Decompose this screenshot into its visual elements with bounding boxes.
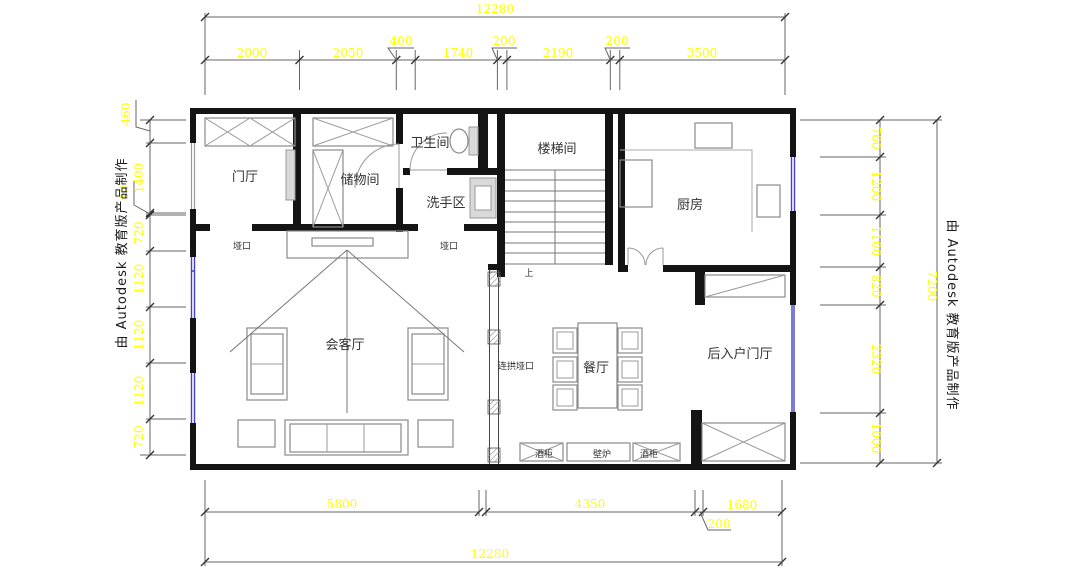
kitchen-door-right <box>646 248 663 265</box>
kitchen-counter-right <box>757 185 780 217</box>
outer-wall-left-seg4 <box>190 425 196 470</box>
label-bathroom: 卫生间 <box>410 136 449 151</box>
dimensions-right: 760 1200 1100 820 2320 1000 7200 <box>800 116 942 467</box>
toilet-tank <box>469 127 478 155</box>
kitchen-top-cabinet <box>695 123 732 148</box>
entry-window-cap-bottom <box>190 209 196 213</box>
kitchen-window <box>792 157 795 213</box>
stair-treads <box>505 170 605 264</box>
dim-bottom-0: 5800 <box>327 497 358 511</box>
label-opening-left: 垭口 <box>233 240 251 252</box>
colonnade-hatch-1 <box>488 272 500 286</box>
dim-bottom-1: 4350 <box>575 497 606 511</box>
wall-bath-right <box>478 114 488 168</box>
watermark-left: 由 Autodesk 教育版产品制作 <box>114 158 130 349</box>
sofa-cushions <box>290 424 401 452</box>
dim-left-leaders <box>134 100 150 214</box>
dim-top-1: 2050 <box>333 46 364 60</box>
wall-kitchen-bottom <box>663 265 790 272</box>
dim-left-extensions <box>140 120 186 455</box>
outer-wall-right-seg2 <box>790 213 796 305</box>
dim-left-5: 1120 <box>132 320 146 351</box>
dim-top-3: 1740 <box>443 46 474 60</box>
wall-rearhall-top-stub <box>695 272 705 305</box>
dimensions-top: 12280 2000 2050 400 1740 200 2190 200 35… <box>201 2 789 95</box>
label-fireplace: 壁炉 <box>593 448 611 460</box>
label-stairwell: 楼梯间 <box>537 142 576 157</box>
living-window-2-cap-bottom <box>190 423 196 427</box>
wall-stair-left <box>497 114 505 277</box>
outer-wall-right-seg3 <box>790 412 796 470</box>
outer-wall-left-seg3 <box>190 320 196 373</box>
wall-hall-a <box>196 224 210 231</box>
kitchen-window-cap-top <box>790 153 796 157</box>
outer-wall-top <box>190 108 796 114</box>
sink-basin <box>475 186 491 210</box>
dim-right-0: 760 <box>869 127 883 150</box>
watermark-right: 由 Autodesk 教育版产品制作 <box>944 220 960 411</box>
kitchen-door-left <box>628 248 645 265</box>
entry-window-cap-top <box>190 139 196 143</box>
label-wine-cabinet-right: 酒柜 <box>640 448 658 460</box>
entry-side-cabinet <box>286 150 295 200</box>
outer-wall-right-seg1 <box>790 108 796 157</box>
dim-left-3: 720 <box>132 222 146 245</box>
dimensions-bottom: 5800 4350 200 1680 12280 <box>201 480 786 566</box>
wall-rearhall-bottom-stub <box>691 410 702 470</box>
toilet-bowl <box>450 129 468 153</box>
entry-left-window <box>192 143 195 213</box>
living-room-fan-lines <box>230 250 464 413</box>
dim-left-1: 1400 <box>132 163 146 194</box>
label-kitchen: 厨房 <box>677 197 703 213</box>
entry-wardrobe <box>205 118 295 146</box>
dim-right-1: 1200 <box>869 171 883 202</box>
stairs <box>505 170 605 264</box>
dim-right-5: 1000 <box>869 423 883 454</box>
dim-top-7: 3500 <box>687 46 718 60</box>
colonnade-hatch-3 <box>488 400 500 414</box>
storage-wardrobe-cross <box>313 118 393 146</box>
dim-bottom-3: 1680 <box>727 498 758 512</box>
dim-top-6: 200 <box>606 34 629 48</box>
living-window-1-cap-top <box>190 253 196 257</box>
rearhall-top-cabinet-diag <box>705 275 785 297</box>
wall-kitchen-bottom-stub <box>618 265 628 272</box>
dim-top-5: 2190 <box>543 46 574 60</box>
label-opening-right: 垭口 <box>440 240 458 252</box>
dim-left-7: 720 <box>132 426 146 449</box>
storage-tall-cross <box>313 150 343 227</box>
living-window-1-cap-bottom <box>190 318 196 322</box>
floor-plan-canvas: 12280 2000 2050 400 1740 200 2190 200 35… <box>0 0 1074 576</box>
label-rear-entry-hall: 后入户门厅 <box>707 346 772 362</box>
dim-right-4: 2320 <box>869 344 883 375</box>
label-living-room: 会客厅 <box>325 337 364 353</box>
dim-top-0: 2000 <box>237 46 268 60</box>
label-wine-cabinet-left: 酒柜 <box>535 448 553 460</box>
outer-wall-left-seg2 <box>190 213 196 257</box>
wall-storage-right-upper <box>396 114 403 144</box>
side-table-left <box>238 420 275 447</box>
wall-kitchen-left <box>618 114 625 265</box>
dim-bottom-2: 200 <box>708 517 731 531</box>
dim-top-2: 400 <box>390 34 413 48</box>
dim-right-2: 1100 <box>869 226 883 257</box>
label-entry-hall: 门厅 <box>232 170 258 185</box>
colonnade-hatch-4 <box>488 448 500 462</box>
dim-right-3: 820 <box>869 275 883 298</box>
rearhall-bottom-cross <box>702 423 785 461</box>
living-window-1 <box>192 257 195 320</box>
side-table-right <box>418 420 453 447</box>
dim-top-4: 200 <box>493 34 516 48</box>
living-window-2 <box>192 373 195 425</box>
sofa-cushion-splits <box>327 424 364 452</box>
colonnade-hatch-2 <box>488 330 500 344</box>
tv-console-inner <box>312 238 373 246</box>
outer-wall-bottom <box>190 464 796 470</box>
living-window-2-cap-top <box>190 369 196 373</box>
label-arch-opening: 连拱垭口 <box>498 360 534 372</box>
sofa <box>285 420 408 455</box>
outer-wall-left-seg1 <box>190 108 196 143</box>
dim-left-6: 1120 <box>132 376 146 407</box>
wall-bath-bottom-b <box>447 168 497 175</box>
wall-stair-right <box>605 114 613 265</box>
wall-hall-d <box>464 224 497 231</box>
dim-top-total: 12280 <box>476 2 514 16</box>
entry-wardrobe-cross <box>205 118 295 146</box>
label-storage: 储物间 <box>340 173 379 188</box>
dim-left-4: 1120 <box>132 264 146 295</box>
dim-left-0: 460 <box>119 103 133 126</box>
label-wash-area: 洗手区 <box>426 196 465 211</box>
kitchen-window-cap-bottom <box>790 211 796 215</box>
kitchen-counter-edge <box>620 150 752 232</box>
label-dining-room: 餐厅 <box>583 360 609 376</box>
wall-bath-bottom-a <box>403 168 410 175</box>
wall-hall-b <box>252 224 302 231</box>
rear-door-cap-top <box>790 300 796 305</box>
dim-right-total: 7200 <box>925 271 939 302</box>
dim-bottom-total: 12280 <box>471 547 509 561</box>
label-stairs-up: 上 <box>524 268 533 279</box>
colonnade-top-cap <box>488 264 500 270</box>
